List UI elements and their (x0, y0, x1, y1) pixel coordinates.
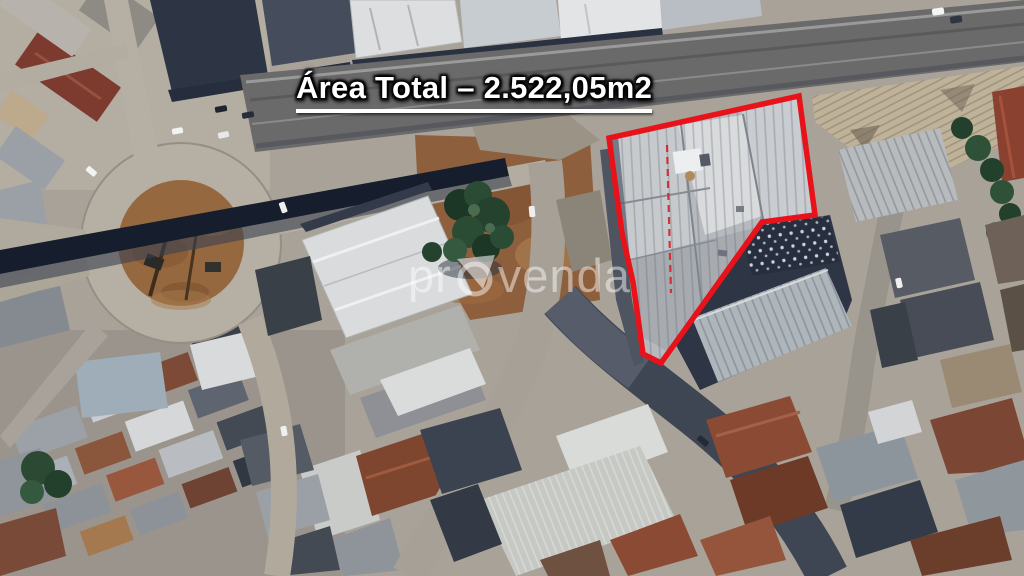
area-title: Área Total – 2.522,05m2 (296, 70, 652, 113)
property-listing-image: Área Total – 2.522,05m2 pr venda (0, 0, 1024, 576)
watermark-logo-triangle-icon (453, 255, 497, 297)
watermark: pr venda (408, 252, 631, 301)
watermark-suffix: venda (498, 252, 631, 301)
watermark-prefix: pr (408, 252, 452, 301)
